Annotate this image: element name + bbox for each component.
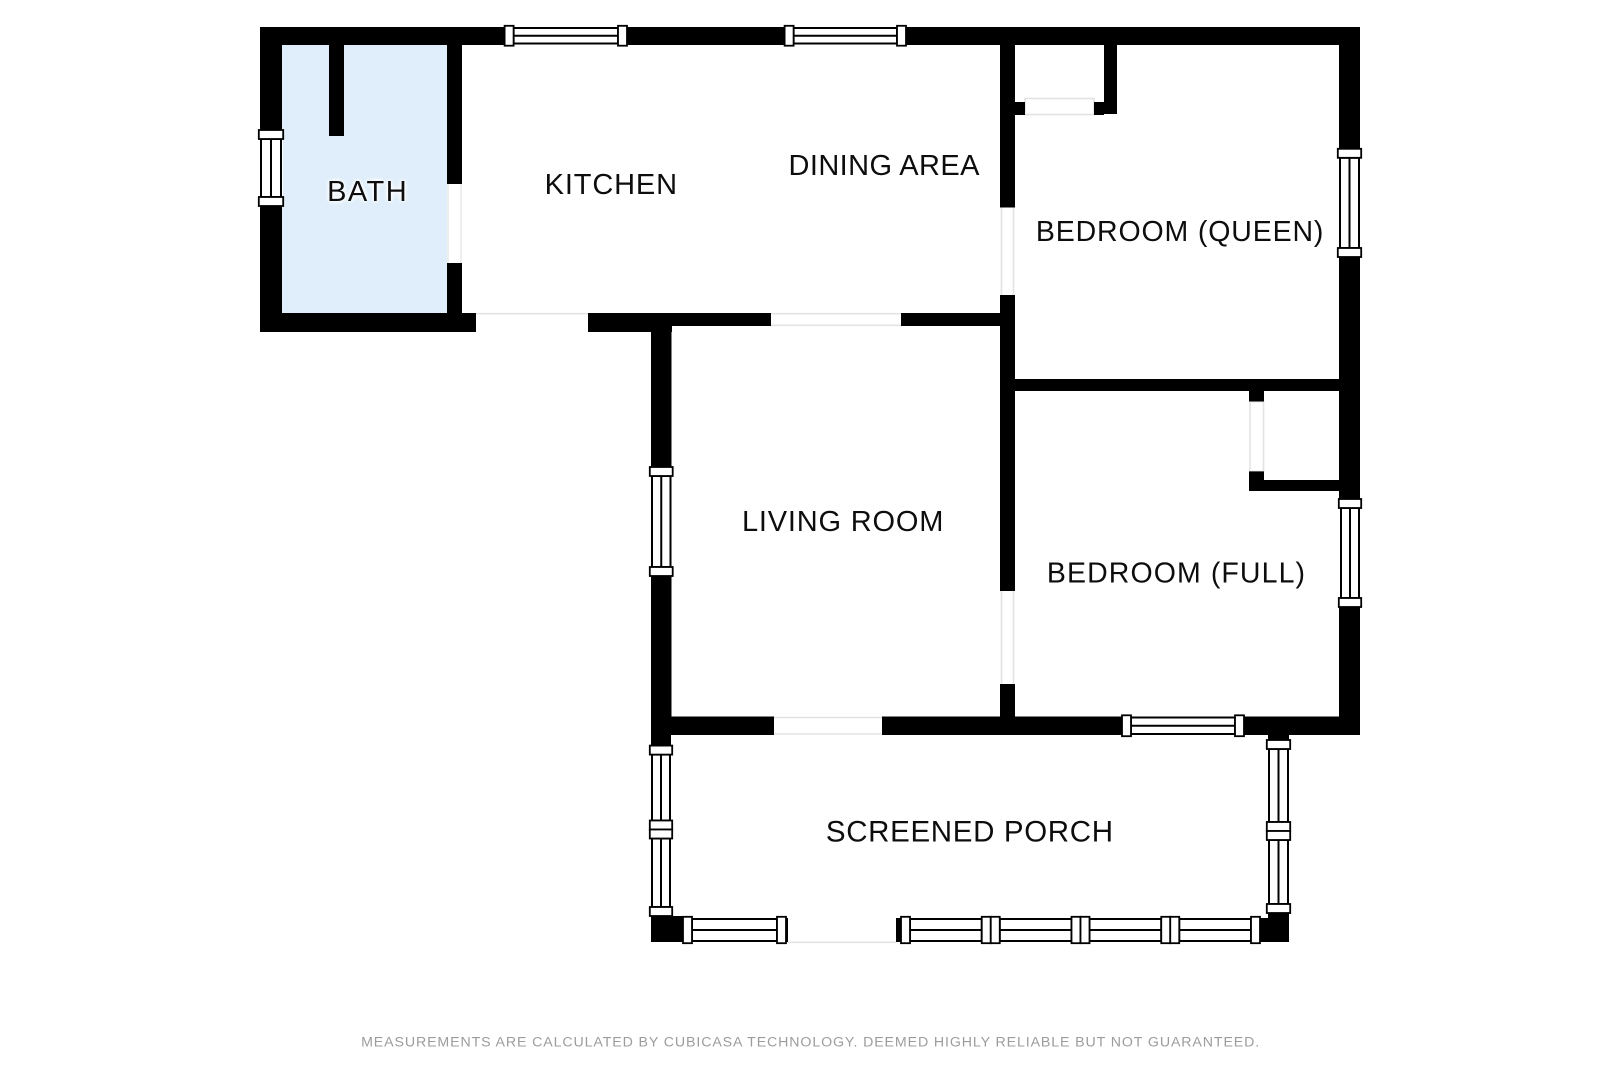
svg-text:MEASUREMENTS ARE CALCULATED BY: MEASUREMENTS ARE CALCULATED BY CUBICASA … [361, 1035, 1260, 1051]
svg-text:LIVING ROOM: LIVING ROOM [742, 506, 944, 538]
svg-text:KITCHEN: KITCHEN [545, 169, 678, 201]
svg-text:SCREENED PORCH: SCREENED PORCH [826, 816, 1114, 849]
svg-text:BEDROOM (QUEEN): BEDROOM (QUEEN) [1036, 216, 1324, 248]
svg-text:DINING AREA: DINING AREA [789, 150, 981, 182]
svg-text:BEDROOM (FULL): BEDROOM (FULL) [1047, 558, 1306, 590]
svg-text:BATH: BATH [327, 176, 408, 208]
